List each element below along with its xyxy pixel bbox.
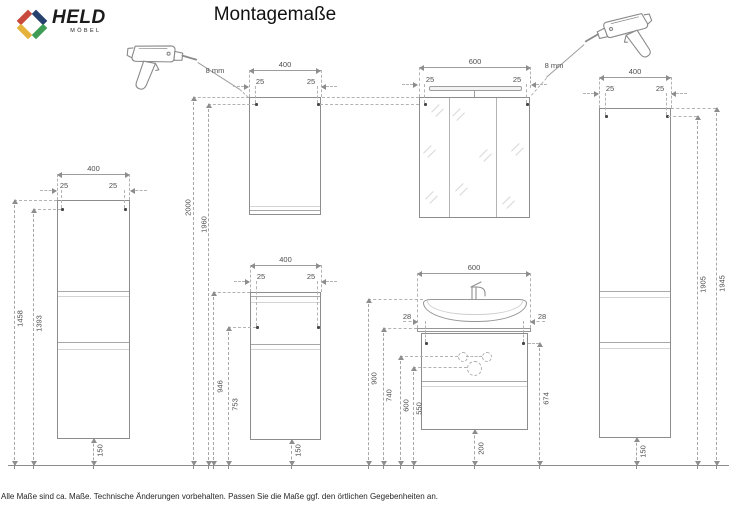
vanity-cabinet xyxy=(421,333,528,430)
wall-cabinet xyxy=(249,97,321,215)
vanity-trapheight-label: 550 xyxy=(415,389,424,429)
mirror-cabinet-width-label: 600 xyxy=(419,57,531,66)
drill-point xyxy=(124,208,127,211)
drill-point xyxy=(425,342,428,345)
right-cabinet-height-label: 1945 xyxy=(718,264,727,304)
wall-cabinet-offset-left-label: 25 xyxy=(250,77,270,86)
held-diamond-logo-icon xyxy=(16,8,48,40)
wall-cabinet-drillheight-dim xyxy=(208,104,209,465)
drill-point xyxy=(522,342,525,345)
brand-subtitle: MÖBEL xyxy=(52,28,106,35)
wall-cabinet-width-label: 400 xyxy=(249,60,321,69)
mid-cabinet-drillheight-dim xyxy=(228,327,229,465)
left-cabinet-width-dim xyxy=(57,174,130,175)
mid-cabinet-drillheight-label: 753 xyxy=(231,385,240,425)
left-cabinet-offset-left-label: 25 xyxy=(54,181,74,190)
brand-logo: HELD MÖBEL xyxy=(16,8,106,40)
right-cabinet-offset-right-label: 25 xyxy=(650,84,670,93)
siphon-hole xyxy=(467,361,482,376)
brand-name: HELD xyxy=(52,8,106,28)
mid-cabinet-height-label: 946 xyxy=(216,367,225,407)
wall-cabinet-height-label: 2000 xyxy=(184,188,193,228)
vanity-sinkheight-label: 900 xyxy=(370,359,379,399)
left-cabinet-height-label: 1458 xyxy=(16,299,25,339)
wall-cabinet-offset-right-label: 25 xyxy=(301,77,321,86)
drill-point xyxy=(605,115,608,118)
wall-cabinet-drillheight-label: 1960 xyxy=(200,205,209,245)
drill-point xyxy=(424,103,427,106)
drill-point xyxy=(526,103,529,106)
wall-cabinet-width-dim xyxy=(249,70,321,71)
drill-point xyxy=(61,208,64,211)
sink-basin xyxy=(423,299,527,322)
right-cabinet-offset-left-label: 25 xyxy=(600,84,620,93)
drill-right-note: 8 mm xyxy=(541,61,567,70)
mirror-cabinet-width-dim xyxy=(419,67,531,68)
right-cabinet-floorgap-dim xyxy=(636,438,637,465)
brand-text: HELD MÖBEL xyxy=(52,8,106,35)
right-cabinet-floorgap-label: 150 xyxy=(639,432,648,472)
mid-cabinet-offset-right-label: 25 xyxy=(301,272,321,281)
right-cabinet-width-dim xyxy=(599,77,671,78)
left-cabinet-drillheight-label: 1393 xyxy=(35,304,44,344)
drill-point xyxy=(256,326,259,329)
disclaimer-text: Alle Maße sind ca. Maße. Technische Ände… xyxy=(1,492,438,501)
faucet-hole xyxy=(458,352,468,362)
left-cabinet-offset-right-label: 25 xyxy=(103,181,123,190)
mid-cabinet-offset-left-label: 25 xyxy=(251,272,271,281)
drill-icon xyxy=(120,33,202,99)
right-tall-cabinet xyxy=(599,108,671,438)
vanity-offset-right-label: 28 xyxy=(534,312,550,321)
wall-cabinet-height-dim xyxy=(193,97,194,465)
mid-cabinet-width-label: 400 xyxy=(250,255,321,264)
vanity-width-dim xyxy=(417,273,531,274)
vanity-drillheight-dim xyxy=(539,343,540,465)
mirror-cabinet-offset-right-label: 25 xyxy=(507,75,527,84)
mirror-cabinet-offset-left-label: 25 xyxy=(420,75,440,84)
mid-cabinet-height-dim xyxy=(213,292,214,465)
vanity-drillheight-label: 674 xyxy=(542,379,551,419)
left-cabinet-floorgap-label: 150 xyxy=(96,431,105,471)
drill-point xyxy=(255,103,258,106)
vanity-countertop xyxy=(417,328,531,332)
vanity-width-label: 600 xyxy=(417,263,531,272)
faucet-hole xyxy=(482,352,492,362)
vanity-topheight-label: 740 xyxy=(385,376,394,416)
mirror-cabinet-light xyxy=(429,86,522,91)
mid-cabinet-width-dim xyxy=(250,265,321,266)
drill-left-note: 8 mm xyxy=(202,66,228,75)
right-cabinet-width-label: 400 xyxy=(599,67,671,76)
drill-point xyxy=(317,326,320,329)
mid-cabinet xyxy=(250,292,321,440)
vanity-floorgap-dim xyxy=(474,430,475,465)
faucet-icon xyxy=(459,281,491,301)
drill-left xyxy=(120,33,202,104)
vanity-holesheight-label: 600 xyxy=(402,386,411,426)
left-cabinet-width-label: 400 xyxy=(57,164,130,173)
mid-cabinet-floorgap-label: 150 xyxy=(294,431,303,471)
page-title: Montagemaße xyxy=(195,4,355,26)
vanity-floorgap-label: 200 xyxy=(477,429,486,469)
left-tall-cabinet xyxy=(57,200,130,439)
right-cabinet-drillheight-label: 1905 xyxy=(699,265,708,305)
montage-diagram: HELD MÖBEL Montagemaße xyxy=(0,0,738,522)
